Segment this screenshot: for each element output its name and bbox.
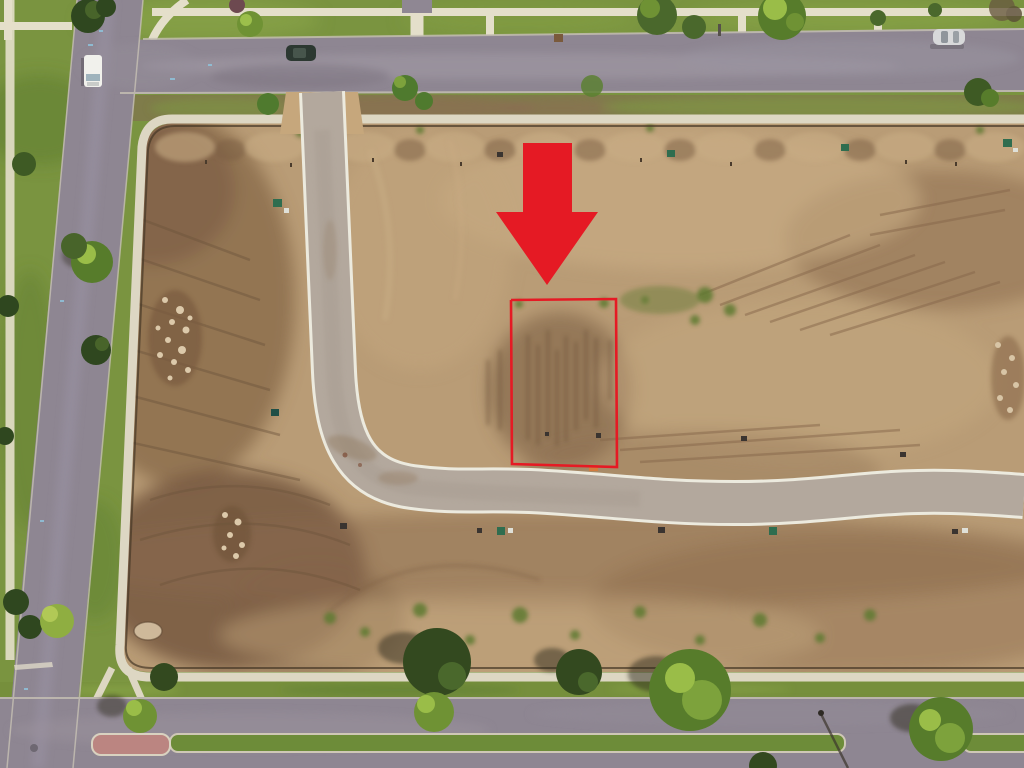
tree (682, 15, 706, 39)
brick-median-end (92, 734, 170, 755)
aerial-photo-canvas (0, 0, 1024, 768)
manhole (30, 744, 38, 752)
aerial-photo (0, 0, 1024, 768)
driveway-pad (402, 0, 432, 13)
tree (392, 75, 418, 101)
tree (40, 604, 74, 638)
tree (581, 75, 603, 97)
mailbox-pad (554, 34, 563, 42)
rock-pile-left (148, 290, 202, 386)
tree (150, 663, 178, 691)
silver-car (930, 29, 965, 49)
bush (870, 10, 886, 26)
tree (81, 335, 111, 365)
tree (415, 92, 433, 110)
bush (12, 152, 36, 176)
tree (928, 3, 942, 17)
dark-car (286, 45, 316, 61)
sign-post (718, 24, 721, 36)
bush (237, 11, 263, 37)
bush (257, 93, 279, 115)
white-truck (81, 55, 102, 87)
rock-patch-right (991, 336, 1024, 420)
